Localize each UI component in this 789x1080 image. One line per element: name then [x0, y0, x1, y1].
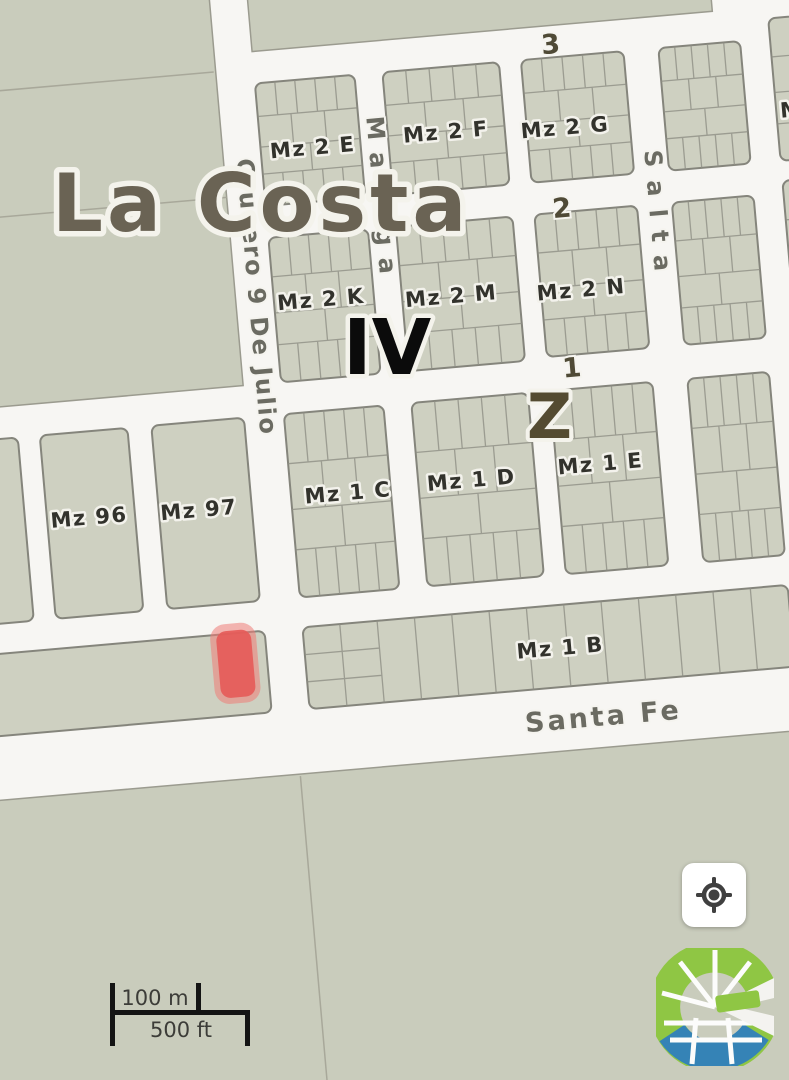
map-canvas[interactable]: Mz 2 E Mz 2 F Mz 2 G Mz Mz 2 K Mz 2 M Mz… — [0, 0, 789, 1080]
street-number-3: 3 — [540, 29, 561, 62]
my-location-icon — [695, 876, 733, 914]
street-number-2: 2 — [551, 192, 572, 225]
globe-c-logo-icon — [656, 948, 774, 1066]
scale-metric-label: 100 m — [121, 986, 188, 1010]
locality-title: La Costa — [52, 157, 470, 250]
highlighted-parcel[interactable] — [209, 622, 262, 706]
locate-button[interactable] — [682, 863, 746, 927]
sector-label-iv: IV — [343, 304, 432, 393]
scale-bar-baseline — [110, 1010, 250, 1015]
block-label-mz-partial: Mz — [779, 96, 789, 123]
brand-logo-watermark — [656, 948, 774, 1066]
map-screen: Mz 2 E Mz 2 F Mz 2 G Mz Mz 2 K Mz 2 M Mz… — [0, 0, 789, 1080]
scale-bar-imperial-tick — [245, 1010, 250, 1046]
scale-imperial-label: 500 ft — [150, 1018, 212, 1042]
block-unlabeled — [687, 372, 785, 562]
scale-bar-metric-tick — [196, 983, 201, 1015]
zone-label-z: Z — [527, 380, 572, 453]
